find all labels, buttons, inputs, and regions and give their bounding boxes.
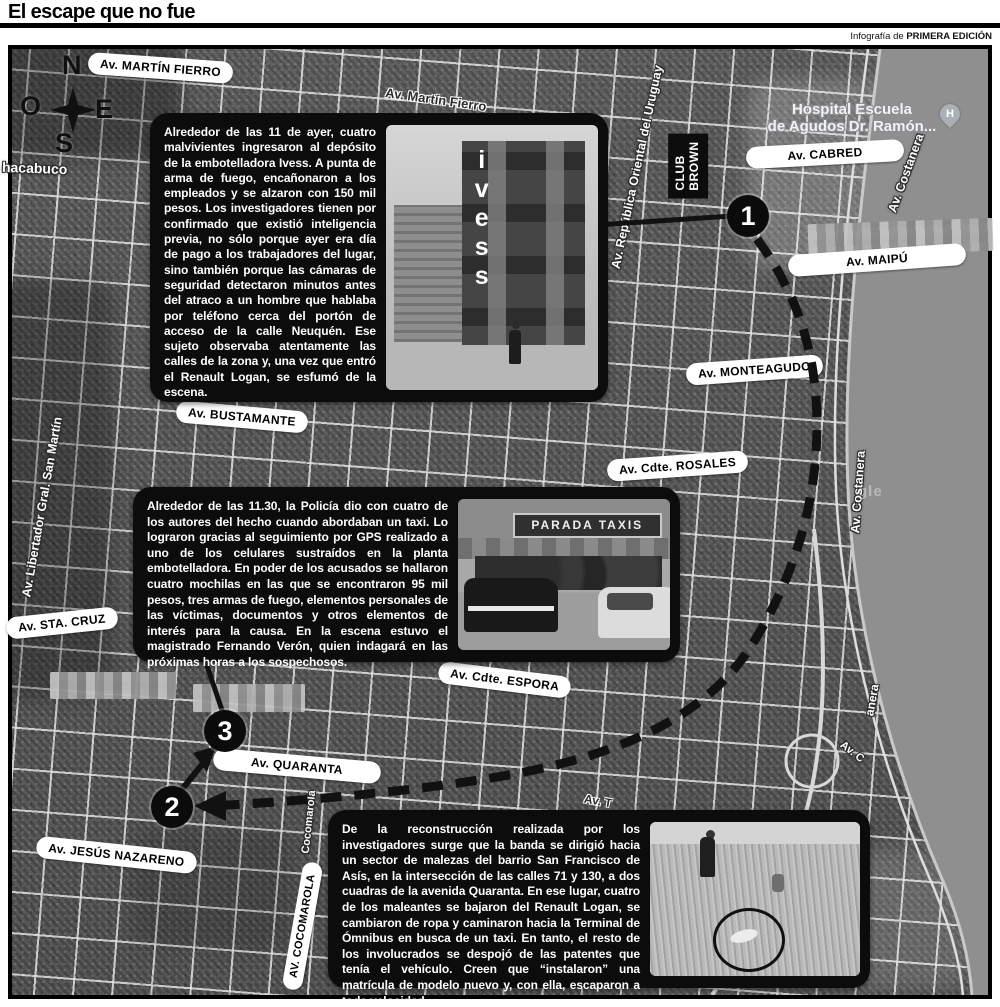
credit-brand: PRIMERA EDICIÓN — [906, 31, 992, 42]
club-brown-label: CLUB BROWN — [668, 133, 708, 198]
hospital-label-line1: Hospital Escuela — [757, 102, 947, 119]
censored-area — [50, 672, 176, 699]
caption-box-arrest: Alrededor de las 11.30, la Policía dio c… — [133, 487, 680, 662]
police-car — [464, 578, 557, 632]
club-brown-line1: CLUB — [674, 141, 688, 190]
caption-box-robbery: Alrededor de las 11 de ayer, cuatro malv… — [150, 113, 608, 402]
hospital-label-line2: de Agudos Dr. Ramón... — [757, 119, 947, 136]
caption-box-reconstruction-text: De la reconstrucción realizada por los i… — [342, 822, 640, 976]
censored-area — [193, 684, 305, 712]
hospital-pin-letter: H — [940, 104, 960, 124]
credit-line: Infografía de PRIMERA EDICIÓN — [850, 31, 992, 42]
investigator-silhouette — [700, 837, 715, 877]
credit-prefix: Infografía de — [850, 31, 906, 42]
taxi-stand-photo: PARADA TAXIS — [458, 499, 670, 650]
waypoint-marker-3: 3 — [204, 710, 246, 752]
compass-west-label: O — [20, 91, 41, 122]
photo-sky — [650, 822, 860, 844]
road-label-chacabuco: hacabuco — [2, 159, 68, 177]
second-figure-silhouette — [772, 874, 784, 892]
waypoint-marker-2: 2 — [151, 786, 193, 828]
person-silhouette — [509, 330, 521, 364]
compass-north-label: N — [62, 50, 82, 81]
parada-taxis-sign-text: PARADA TAXIS — [531, 518, 643, 532]
caption-box-arrest-text: Alrededor de las 11.30, la Policía dio c… — [147, 499, 448, 650]
evidence-circle-annotation — [713, 908, 785, 972]
caption-box-reconstruction: De la reconstrucción realizada por los i… — [328, 810, 870, 988]
wasteland-search-photo — [650, 822, 860, 976]
parada-taxis-sign: PARADA TAXIS — [513, 513, 661, 539]
compass-east-label: E — [95, 94, 113, 125]
title-rule — [0, 23, 1000, 28]
compass-south-label: S — [55, 128, 73, 159]
waypoint-marker-1: 1 — [727, 195, 769, 237]
photo-ground — [386, 345, 598, 390]
page-title: El escape que no fue — [8, 1, 195, 24]
caption-box-robbery-text: Alrededor de las 11 de ayer, cuatro malv… — [164, 125, 376, 390]
ivess-vertical-sign: ivess — [469, 146, 494, 291]
hospital-label: Hospital Escuela de Agudos Dr. Ramón... — [757, 102, 947, 135]
club-brown-line2: BROWN — [688, 141, 702, 190]
hospital-pin-icon: H — [936, 100, 964, 128]
taxi-car — [598, 587, 670, 638]
infographic-page: El escape que no fue Infografía de PRIME… — [0, 0, 1000, 1007]
ivess-building-photo: ivess — [386, 125, 598, 390]
map-watermark: gle — [858, 483, 883, 500]
